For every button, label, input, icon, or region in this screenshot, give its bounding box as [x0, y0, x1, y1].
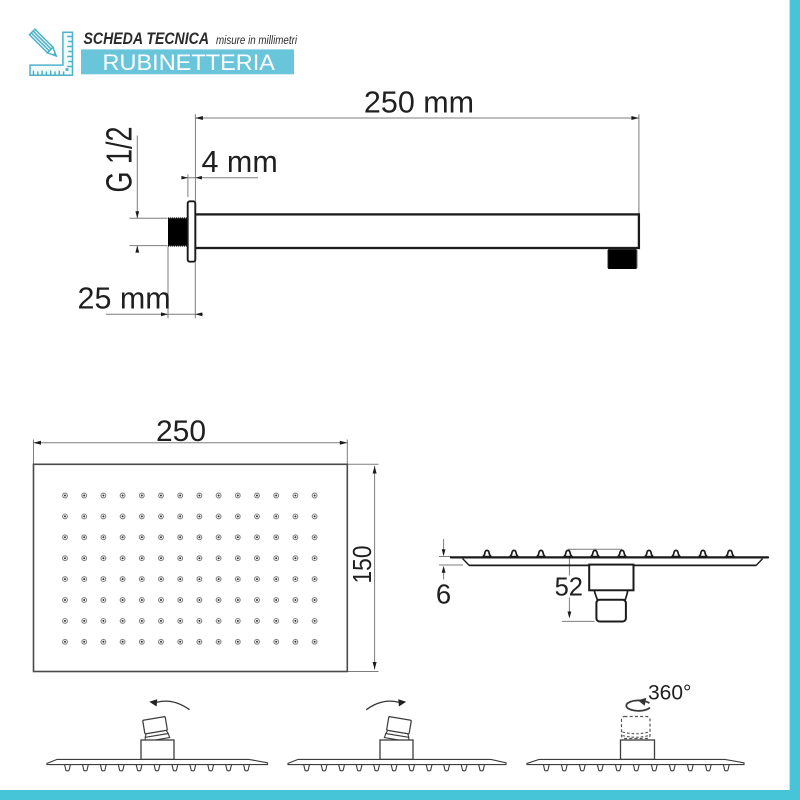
svg-text:RUBINETTERIA: RUBINETTERIA: [103, 50, 276, 75]
svg-text:150: 150: [347, 546, 377, 584]
svg-text:SCHEDA TECNICA: SCHEDA TECNICA: [84, 30, 210, 48]
svg-text:360°: 360°: [648, 682, 691, 705]
svg-text:misure in millimetri: misure in millimetri: [216, 35, 297, 47]
svg-text:52: 52: [555, 574, 583, 602]
svg-text:250: 250: [156, 415, 206, 448]
svg-text:G 1/2: G 1/2: [99, 127, 140, 193]
svg-text:4 mm: 4 mm: [202, 145, 278, 179]
svg-text:250 mm: 250 mm: [364, 86, 474, 120]
svg-text:25 mm: 25 mm: [78, 282, 171, 316]
svg-text:6: 6: [436, 579, 451, 610]
